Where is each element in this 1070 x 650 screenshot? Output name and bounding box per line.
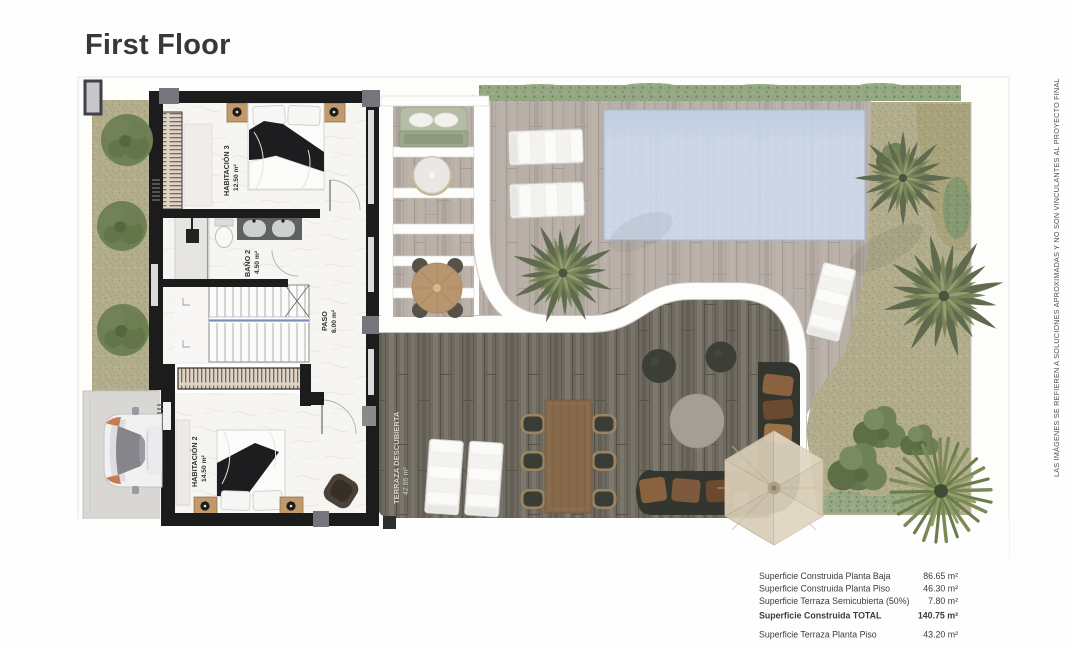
svg-text:140.75 m²: 140.75 m² [918, 611, 958, 621]
svg-text:14.50 m²: 14.50 m² [201, 454, 208, 482]
svg-text:TERRAZA DESCUBIERTA: TERRAZA DESCUBIERTA [392, 411, 401, 504]
svg-text:HABITACIÓN 3: HABITACIÓN 3 [222, 145, 231, 196]
svg-text:Superficie Terraza Planta Piso: Superficie Terraza Planta Piso [759, 630, 877, 640]
svg-text:42.85 m²: 42.85 m² [403, 467, 410, 495]
svg-text:Superficie Construida Planta B: Superficie Construida Planta Baja [759, 571, 891, 581]
svg-text:Superficie Construida TOTAL: Superficie Construida TOTAL [759, 611, 882, 621]
svg-text:PASO: PASO [320, 311, 329, 331]
svg-text:Superficie Construida Planta P: Superficie Construida Planta Piso [759, 584, 890, 594]
svg-text:BAÑO 2: BAÑO 2 [243, 250, 252, 277]
svg-text:Superficie Terraza Semicubiert: Superficie Terraza Semicubierta (50%) [759, 596, 909, 606]
svg-text:86.65 m²: 86.65 m² [923, 571, 958, 581]
svg-text:4.50 m²: 4.50 m² [254, 250, 261, 274]
svg-text:First Floor: First Floor [85, 29, 231, 61]
svg-text:LAS IMÁGENES SE REFIEREN A SOL: LAS IMÁGENES SE REFIEREN A SOLUCIONES AP… [1052, 78, 1061, 477]
svg-text:12.50 m²: 12.50 m² [233, 163, 240, 191]
svg-text:46.30 m²: 46.30 m² [923, 584, 958, 594]
svg-text:7.80 m²: 7.80 m² [928, 596, 958, 606]
svg-text:HABITACIÓN 2: HABITACIÓN 2 [190, 436, 199, 487]
svg-text:6.00 m²: 6.00 m² [331, 309, 338, 333]
svg-text:43.20 m²: 43.20 m² [923, 630, 958, 640]
